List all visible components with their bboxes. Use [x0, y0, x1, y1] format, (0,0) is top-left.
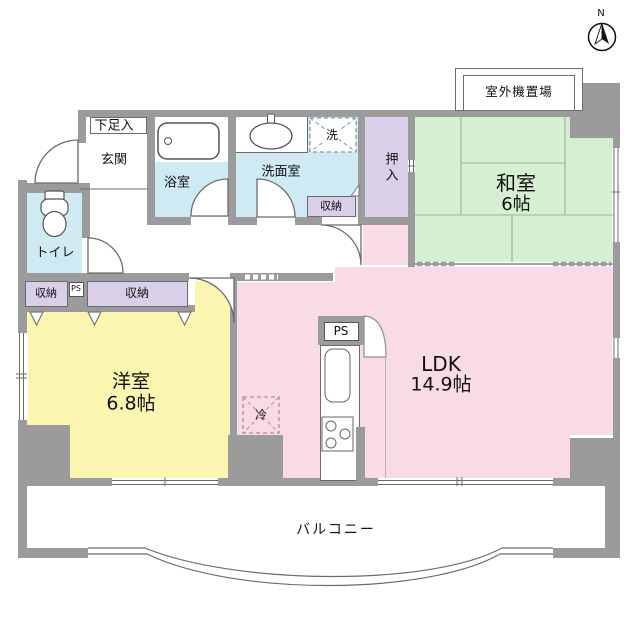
toilet-door-arc [88, 238, 123, 273]
label-washitsu-size: 6帖 [501, 196, 530, 214]
curved-wall [364, 316, 386, 357]
label-getabako: 下足入 [94, 120, 133, 133]
label-fridge: 冷 [255, 409, 267, 421]
floor-plan: 下足入 玄関 浴室 洗面室 洗 収納 押入 トイレ 収納 PS 収納 和室 6帖… [0, 0, 640, 640]
youshitsu-door-arc [189, 278, 234, 323]
bath-door-arc [191, 179, 228, 216]
door-arcs [35, 140, 361, 323]
label-genkan: 玄関 [101, 154, 127, 167]
label-oshiire: 押入 [384, 152, 397, 184]
label-ldk-name: LDK [421, 354, 461, 374]
label-ps-small: PS [71, 285, 81, 293]
label-ps-kitchen: PS [334, 325, 349, 337]
label-youshitsu-name: 洋室 [112, 373, 150, 392]
label-closet-hall: 収納 [320, 201, 342, 212]
label-ldk-size: 14.9帖 [410, 376, 471, 395]
label-toilet: トイレ [35, 247, 74, 260]
washroom-door-arc [257, 179, 295, 217]
label-washitsu-name: 和室 [496, 173, 536, 193]
label-balcony: バルコニー [296, 523, 376, 537]
label-youshitsu-size: 6.8帖 [106, 395, 155, 414]
label-closet-left: 収納 [35, 288, 57, 299]
label-outdoor-unit: 室外機置場 [485, 86, 553, 99]
entrance-door-arc [35, 140, 78, 183]
stove-icon [322, 417, 353, 451]
label-washer: 洗 [325, 129, 339, 141]
balcony-railing [88, 548, 553, 586]
kitchen-sink-icon [325, 349, 350, 402]
bathtub-icon [158, 123, 219, 159]
label-closet-mid: 収納 [125, 287, 149, 299]
label-compass-n: N [597, 9, 604, 19]
label-bathroom: 浴室 [164, 177, 190, 190]
toilet-icon [41, 191, 68, 237]
label-washroom: 洗面室 [261, 166, 300, 179]
closet-door-marks [30, 312, 191, 325]
door-stop-mark [351, 185, 359, 196]
compass-icon [589, 23, 616, 51]
sink-icon [250, 114, 292, 149]
ldk-door-arc [321, 225, 361, 265]
